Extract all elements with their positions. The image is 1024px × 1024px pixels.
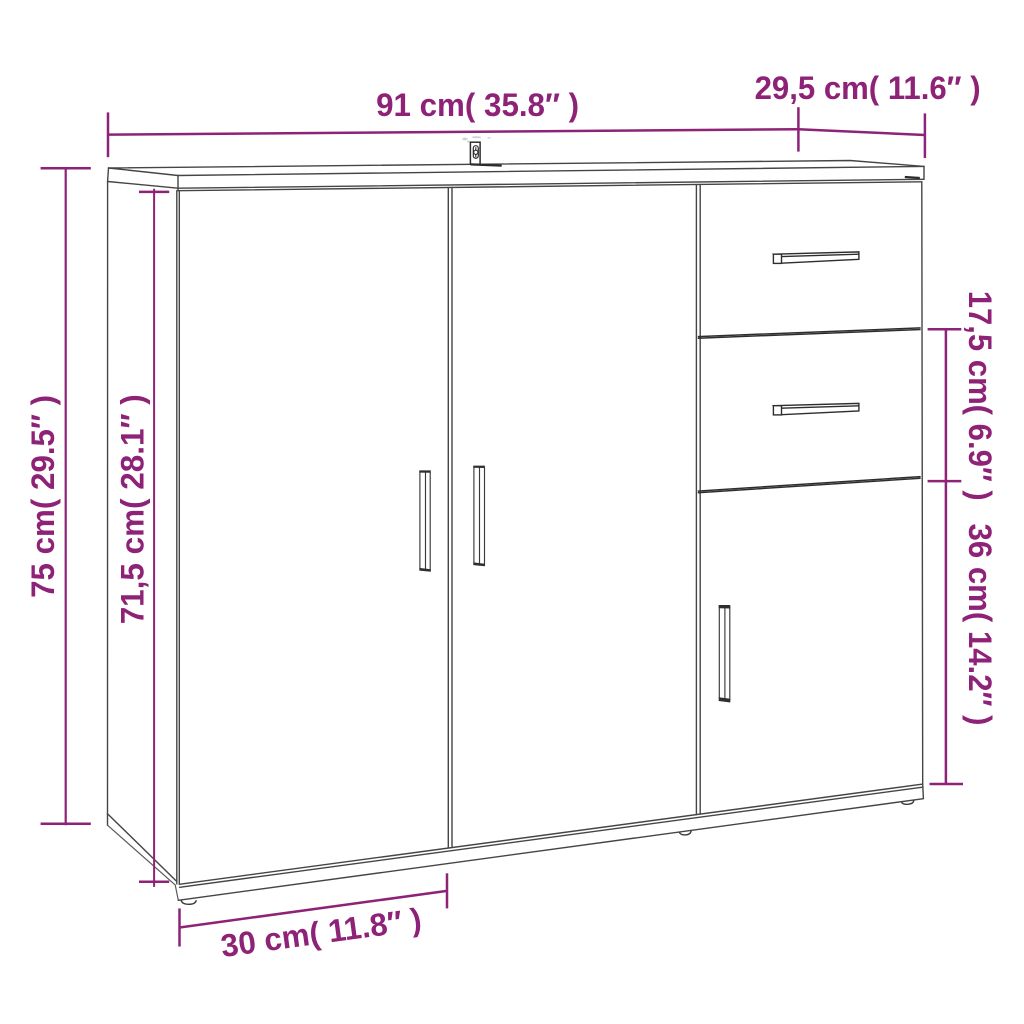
svg-text:29,5 cm( 11.6″ ): 29,5 cm( 11.6″ ) [755, 70, 981, 106]
svg-text:91 cm( 35.8″ ): 91 cm( 35.8″ ) [376, 87, 579, 123]
svg-text:30 cm( 11.8″ ): 30 cm( 11.8″ ) [219, 901, 424, 964]
svg-text:75 cm( 29.5″ ): 75 cm( 29.5″ ) [25, 395, 61, 598]
svg-text:17,5 cm( 6.9″ ): 17,5 cm( 6.9″ ) [962, 291, 998, 501]
svg-text:71,5 cm( 28.1″ ): 71,5 cm( 28.1″ ) [115, 394, 151, 624]
svg-text:36 cm( 14.2″ ): 36 cm( 14.2″ ) [962, 524, 998, 726]
